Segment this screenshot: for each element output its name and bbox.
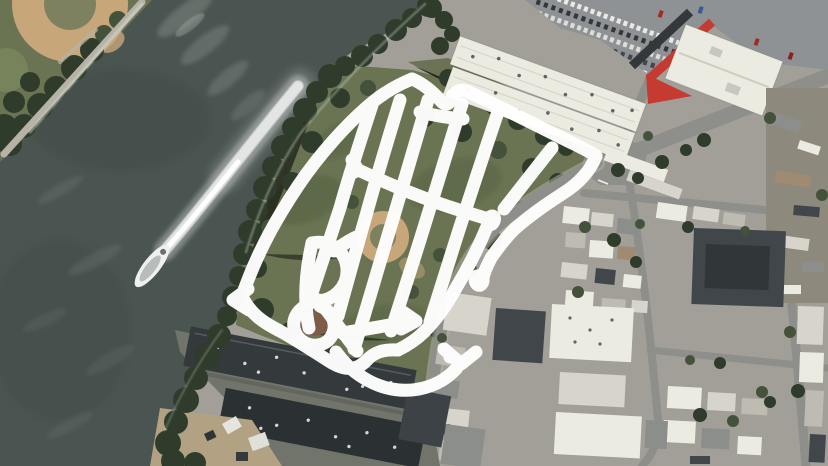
route-stroke-lower-mid-arrow bbox=[401, 312, 416, 329]
route-stroke-right-edge-end-loop bbox=[475, 276, 483, 286]
satellite-image bbox=[0, 0, 828, 466]
satellite-map-viewport[interactable] bbox=[0, 0, 828, 466]
route-stroke-middle-start-kink bbox=[350, 160, 358, 174]
route-stroke-r-stem bbox=[306, 243, 312, 328]
route-stroke-top-link bbox=[420, 112, 463, 119]
